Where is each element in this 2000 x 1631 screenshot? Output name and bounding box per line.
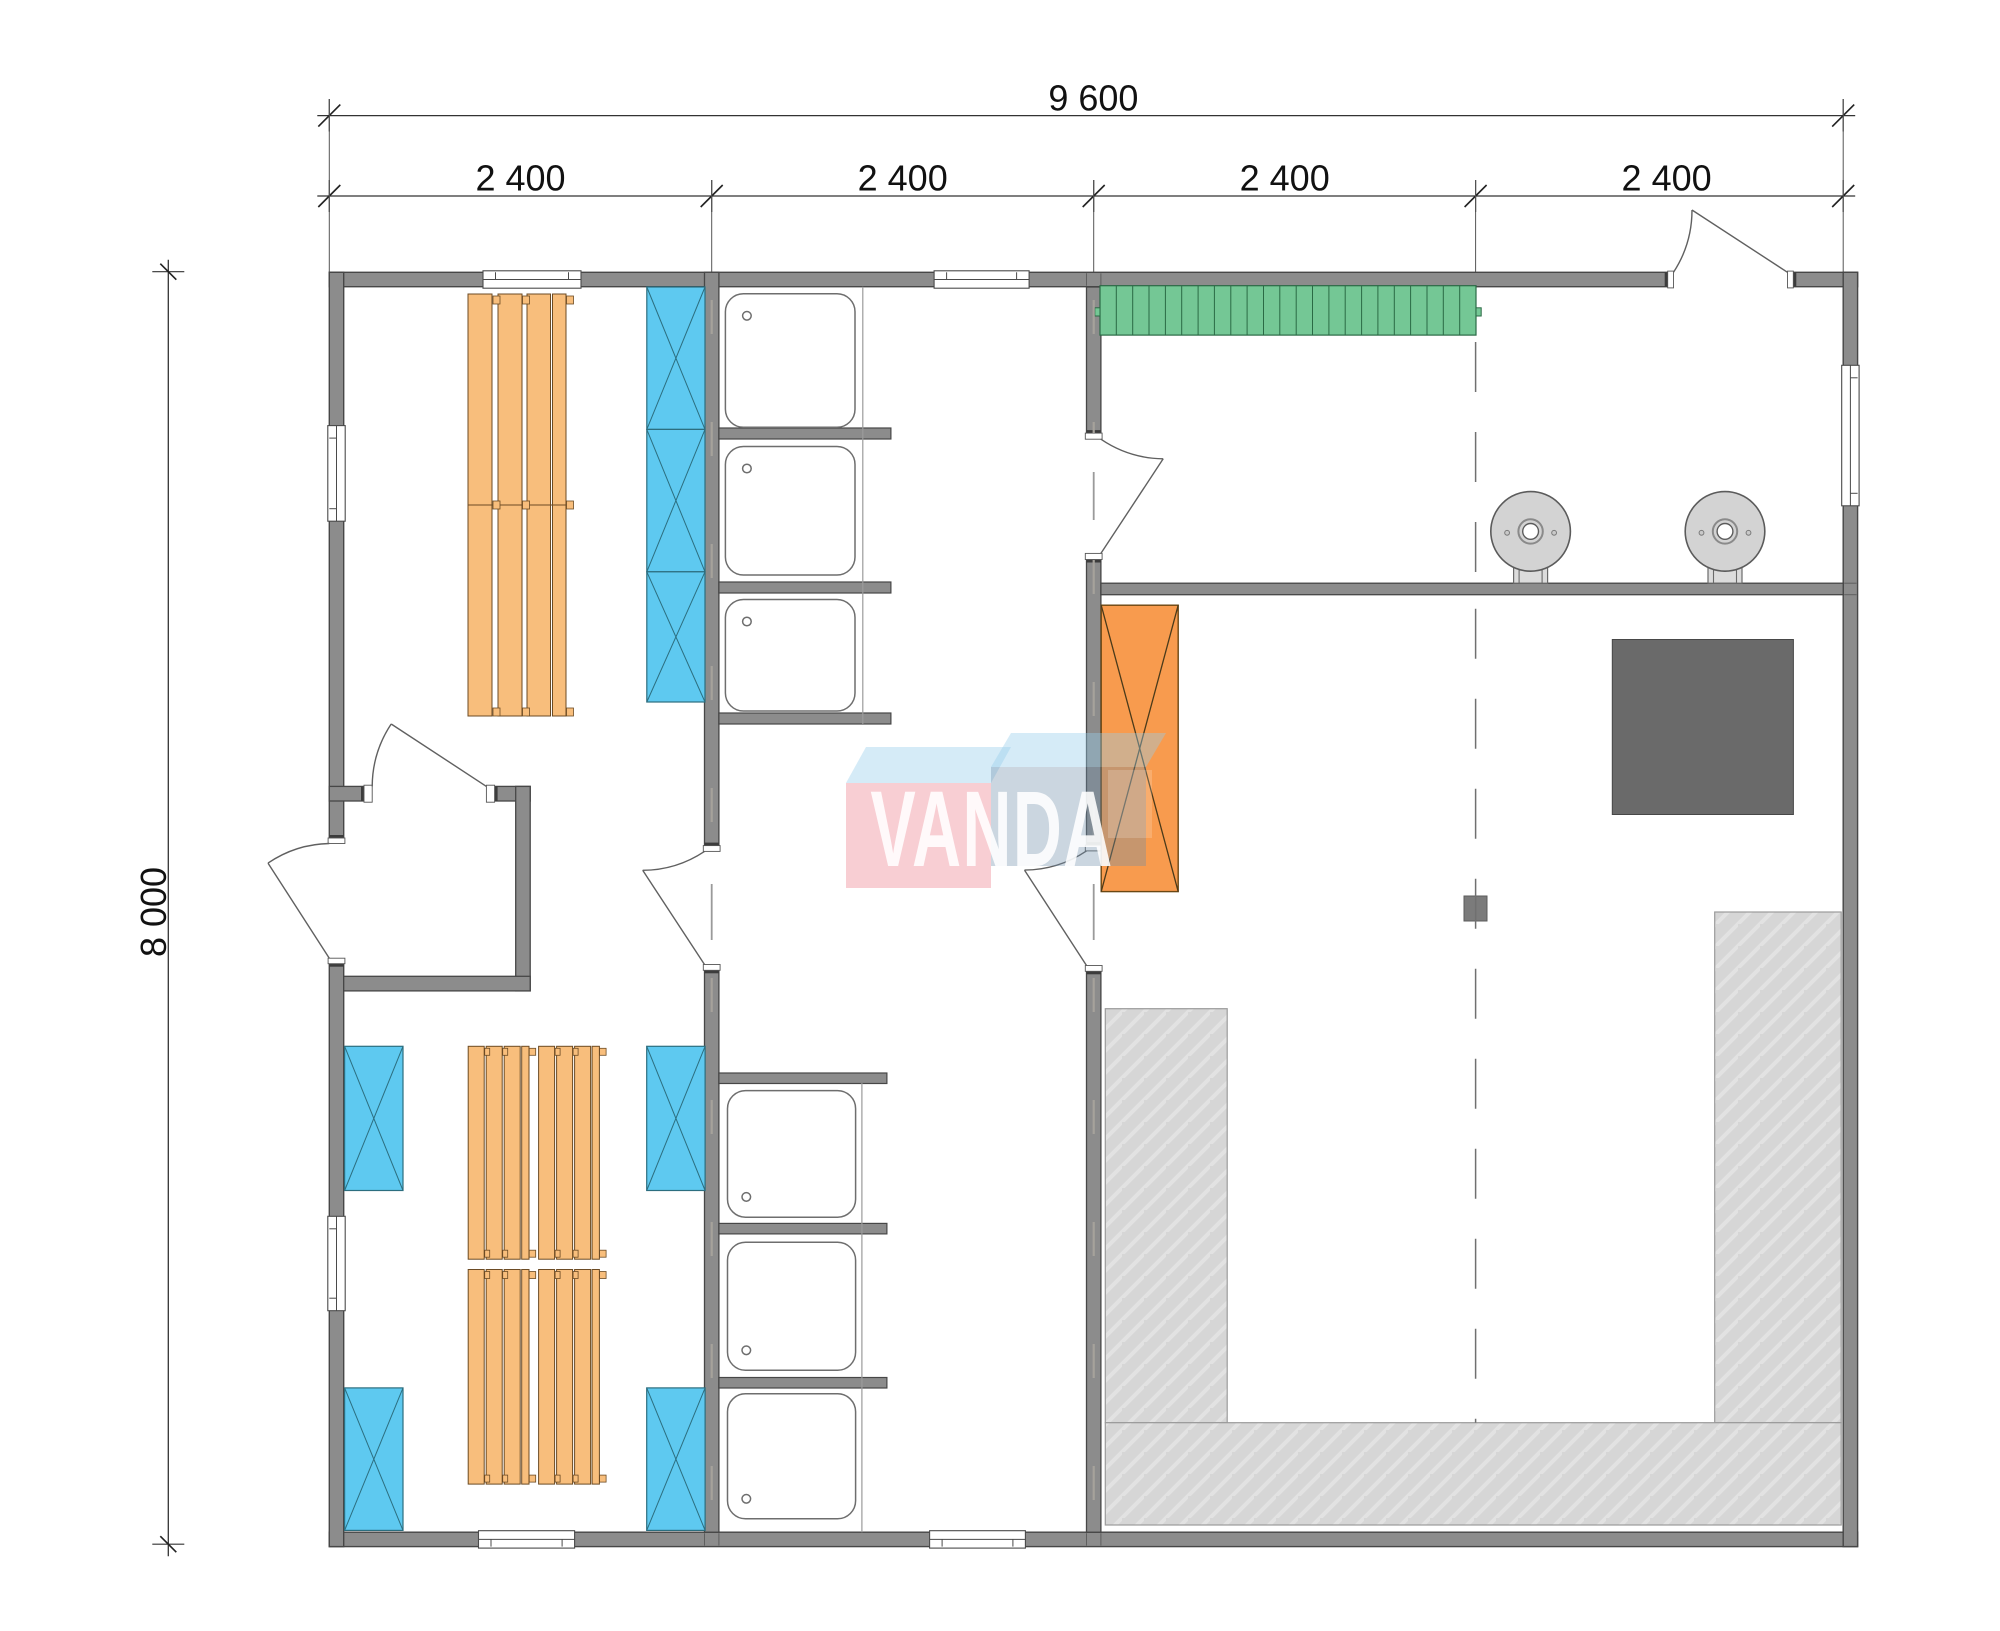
svg-text:8 000: 8 000 bbox=[133, 867, 174, 957]
svg-text:VANDA: VANDA bbox=[870, 769, 1113, 890]
svg-text:2 400: 2 400 bbox=[1240, 158, 1330, 199]
svg-text:9 600: 9 600 bbox=[1048, 78, 1138, 119]
svg-text:2 400: 2 400 bbox=[1622, 158, 1712, 199]
svg-text:2 400: 2 400 bbox=[475, 158, 565, 199]
svg-text:2 400: 2 400 bbox=[858, 158, 948, 199]
